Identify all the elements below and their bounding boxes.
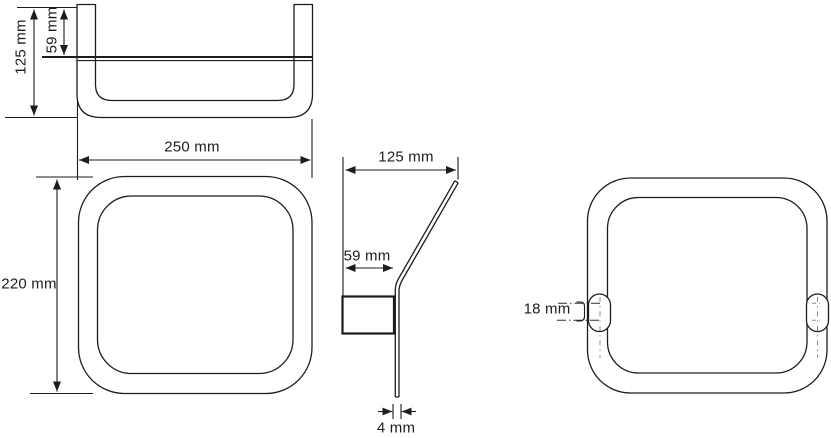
label-side-plate-depth: 59 mm — [344, 249, 391, 264]
label-top-plate-depth: 59 mm — [45, 7, 60, 54]
top-view-outline — [42, 4, 313, 118]
side-view-dimensions — [346, 157, 459, 419]
label-top-depth: 125 mm — [14, 19, 29, 74]
back-view-outline — [588, 178, 829, 393]
dim-bracket-18mm — [577, 302, 585, 321]
side-view-outline — [343, 157, 459, 397]
front-view-outline — [79, 177, 313, 394]
label-side-depth: 125 mm — [378, 150, 433, 165]
mount-plate-side — [343, 297, 395, 334]
drawing-canvas: 125 mm 59 mm 250 mm 220 mm 125 mm 59 mm … — [0, 0, 831, 438]
label-front-height: 220 mm — [1, 277, 56, 292]
technical-drawing — [0, 0, 831, 438]
label-side-thickness: 4 mm — [377, 421, 415, 436]
label-back-tab-height: 18 mm — [524, 302, 571, 317]
label-top-width: 250 mm — [164, 140, 219, 155]
